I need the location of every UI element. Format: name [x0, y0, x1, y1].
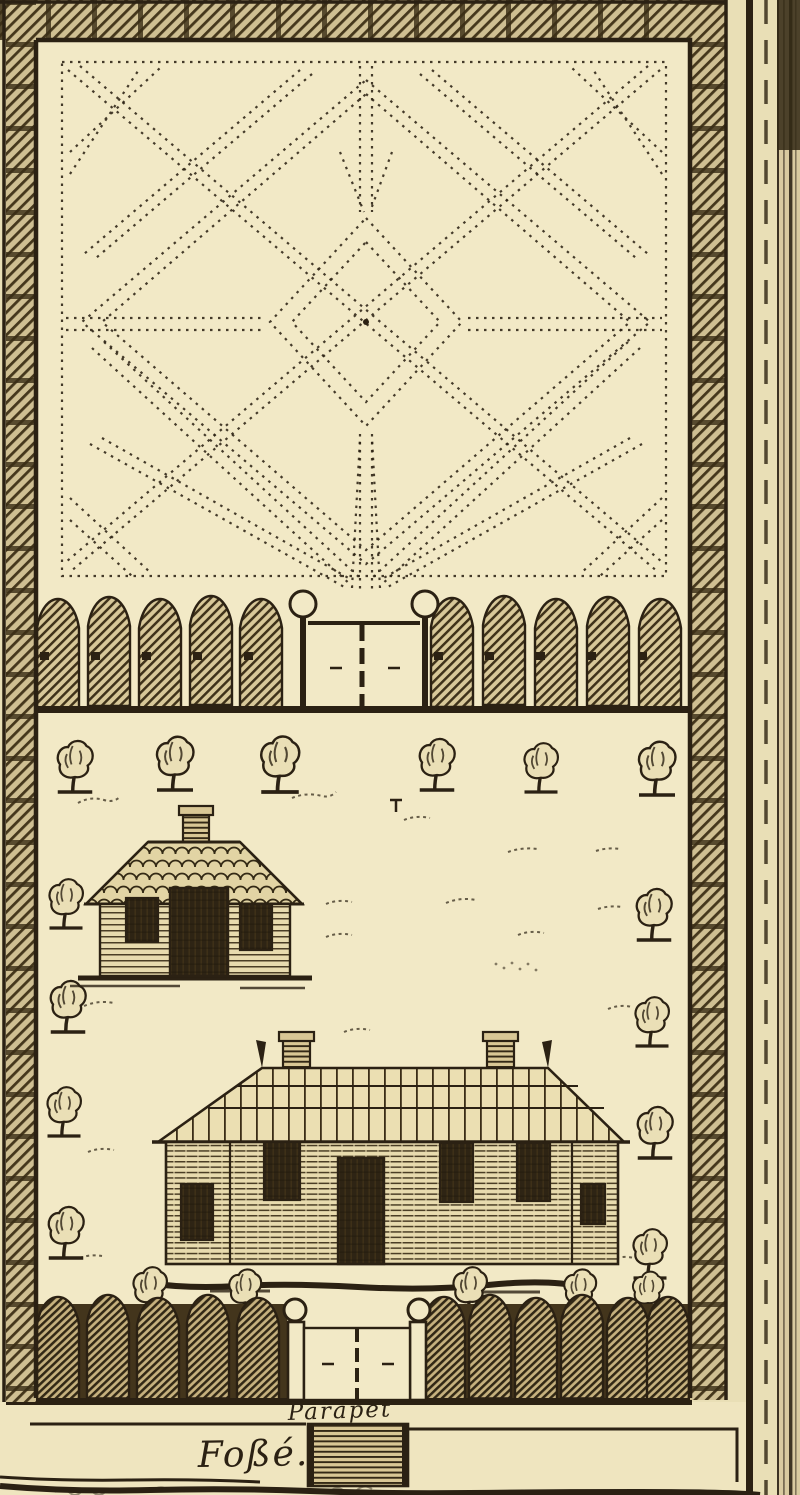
cabin-chimney-cap	[179, 806, 213, 815]
gate-post-knob	[284, 1299, 306, 1321]
gate-post-knob	[408, 1299, 430, 1321]
book-gutter-edge	[777, 0, 800, 1495]
garden-center-dot	[363, 319, 369, 325]
house-window	[264, 1142, 300, 1200]
gate-post-knob	[290, 591, 316, 617]
cabin-door	[170, 888, 228, 976]
palisade-wall-top	[0, 0, 726, 40]
plantation-plan-engraving: Parapet Foßé.	[0, 0, 800, 1495]
gate-post	[410, 1322, 426, 1400]
cabin-window	[126, 898, 158, 942]
scanned-engraving-page: Parapet Foßé.	[0, 0, 800, 1495]
house-door	[338, 1158, 384, 1264]
cabin-window	[240, 904, 272, 950]
gate-post	[288, 1322, 304, 1400]
fosse-label: Foßé.	[196, 1433, 309, 1476]
moat-bridge	[308, 1424, 408, 1486]
house-window	[181, 1184, 213, 1240]
parapet-label: Parapet	[286, 1396, 392, 1426]
house-window	[517, 1143, 550, 1201]
gate-post-knob	[412, 591, 438, 617]
house-window	[581, 1184, 605, 1224]
plate-frame-line	[746, 0, 753, 1495]
house-window	[440, 1143, 473, 1202]
